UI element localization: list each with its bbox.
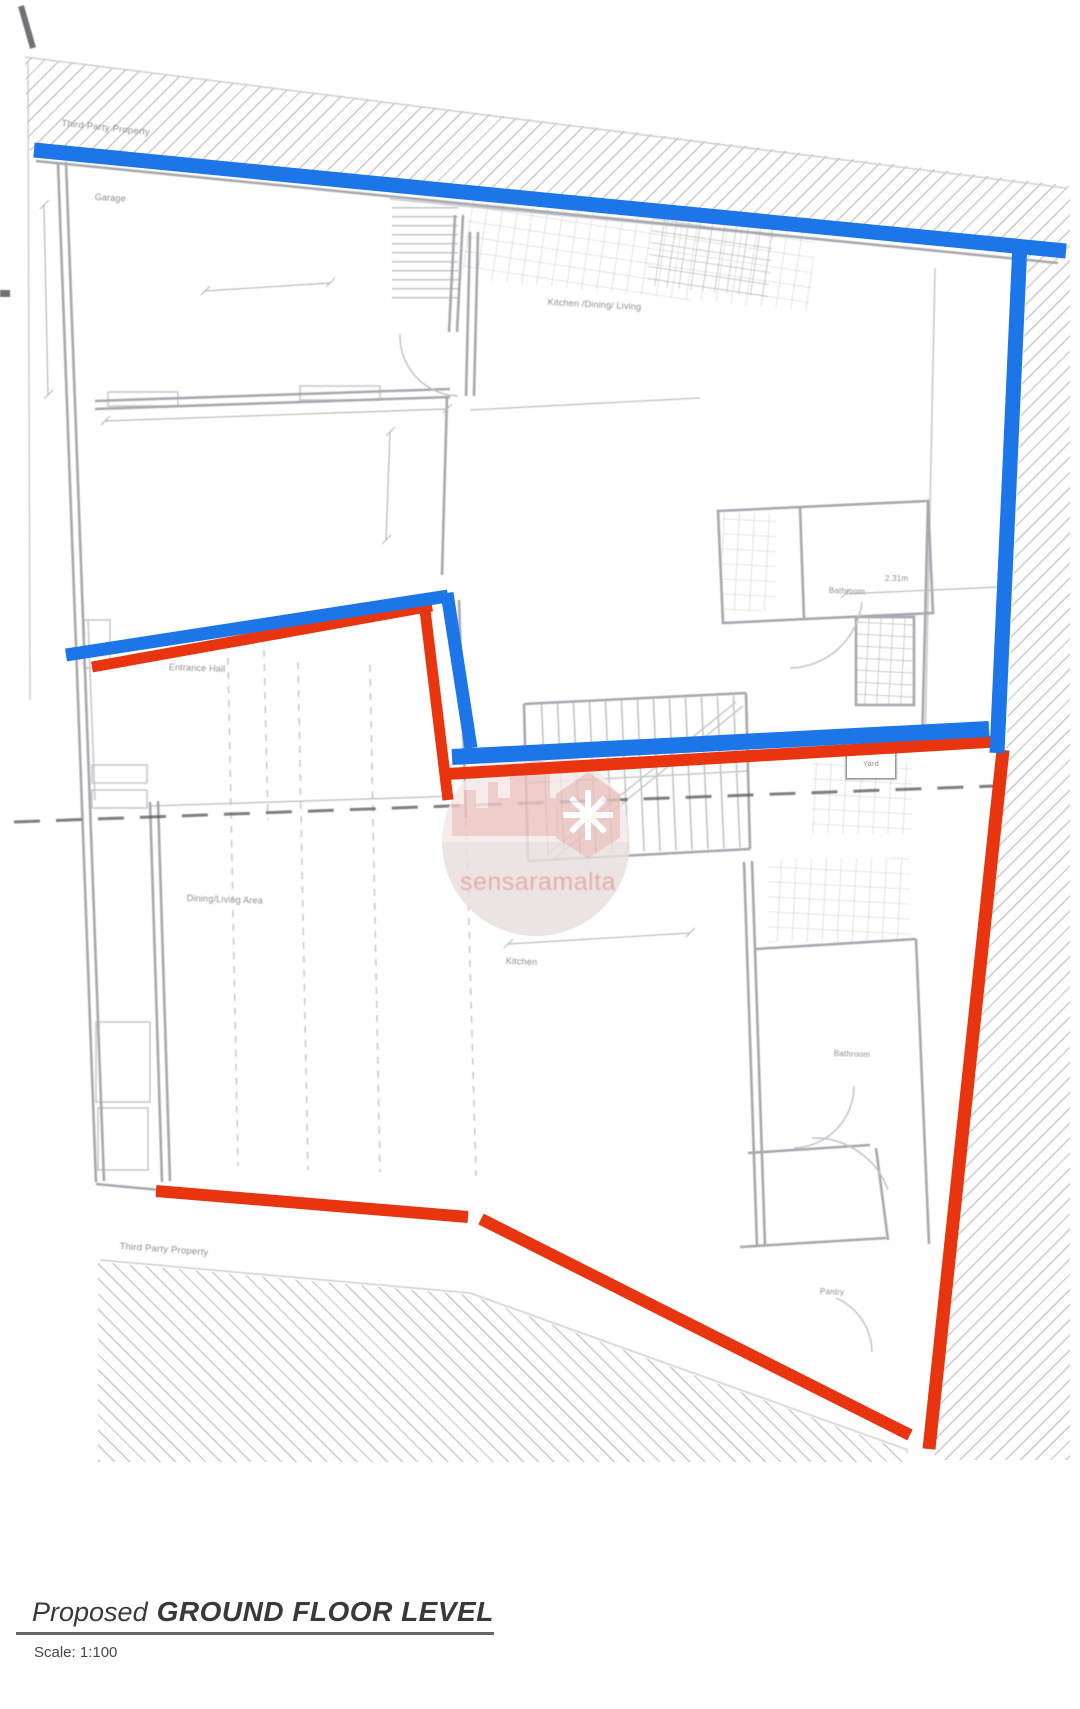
red-line-mid-connector xyxy=(425,610,448,800)
plan-title-prefix: Proposed xyxy=(32,1597,148,1627)
red-line-right-diagonal xyxy=(929,750,1003,1449)
plan-title: GROUND FLOOR LEVEL xyxy=(157,1596,494,1627)
blue-line-right-vertical xyxy=(997,243,1020,753)
blue-line-mid-connector xyxy=(447,593,471,748)
blue-line-top-boundary xyxy=(34,150,1066,251)
red-line-bottom-diagonal xyxy=(481,1219,910,1435)
blue-line-left-diagonal xyxy=(66,596,448,655)
annotation-overlay xyxy=(0,0,1080,1709)
scale-label: Scale: 1:100 xyxy=(34,1644,117,1661)
red-line-left-diagonal xyxy=(92,606,432,667)
red-line-bottom-left xyxy=(156,1191,468,1217)
plan-title-line: ProposedGROUND FLOOR LEVEL xyxy=(32,1596,494,1628)
blue-annotation-lines xyxy=(34,150,1066,757)
floor-plan-page: { "plan": { "labels": { "third_party_top… xyxy=(0,0,1080,1709)
title-underline xyxy=(16,1632,494,1635)
